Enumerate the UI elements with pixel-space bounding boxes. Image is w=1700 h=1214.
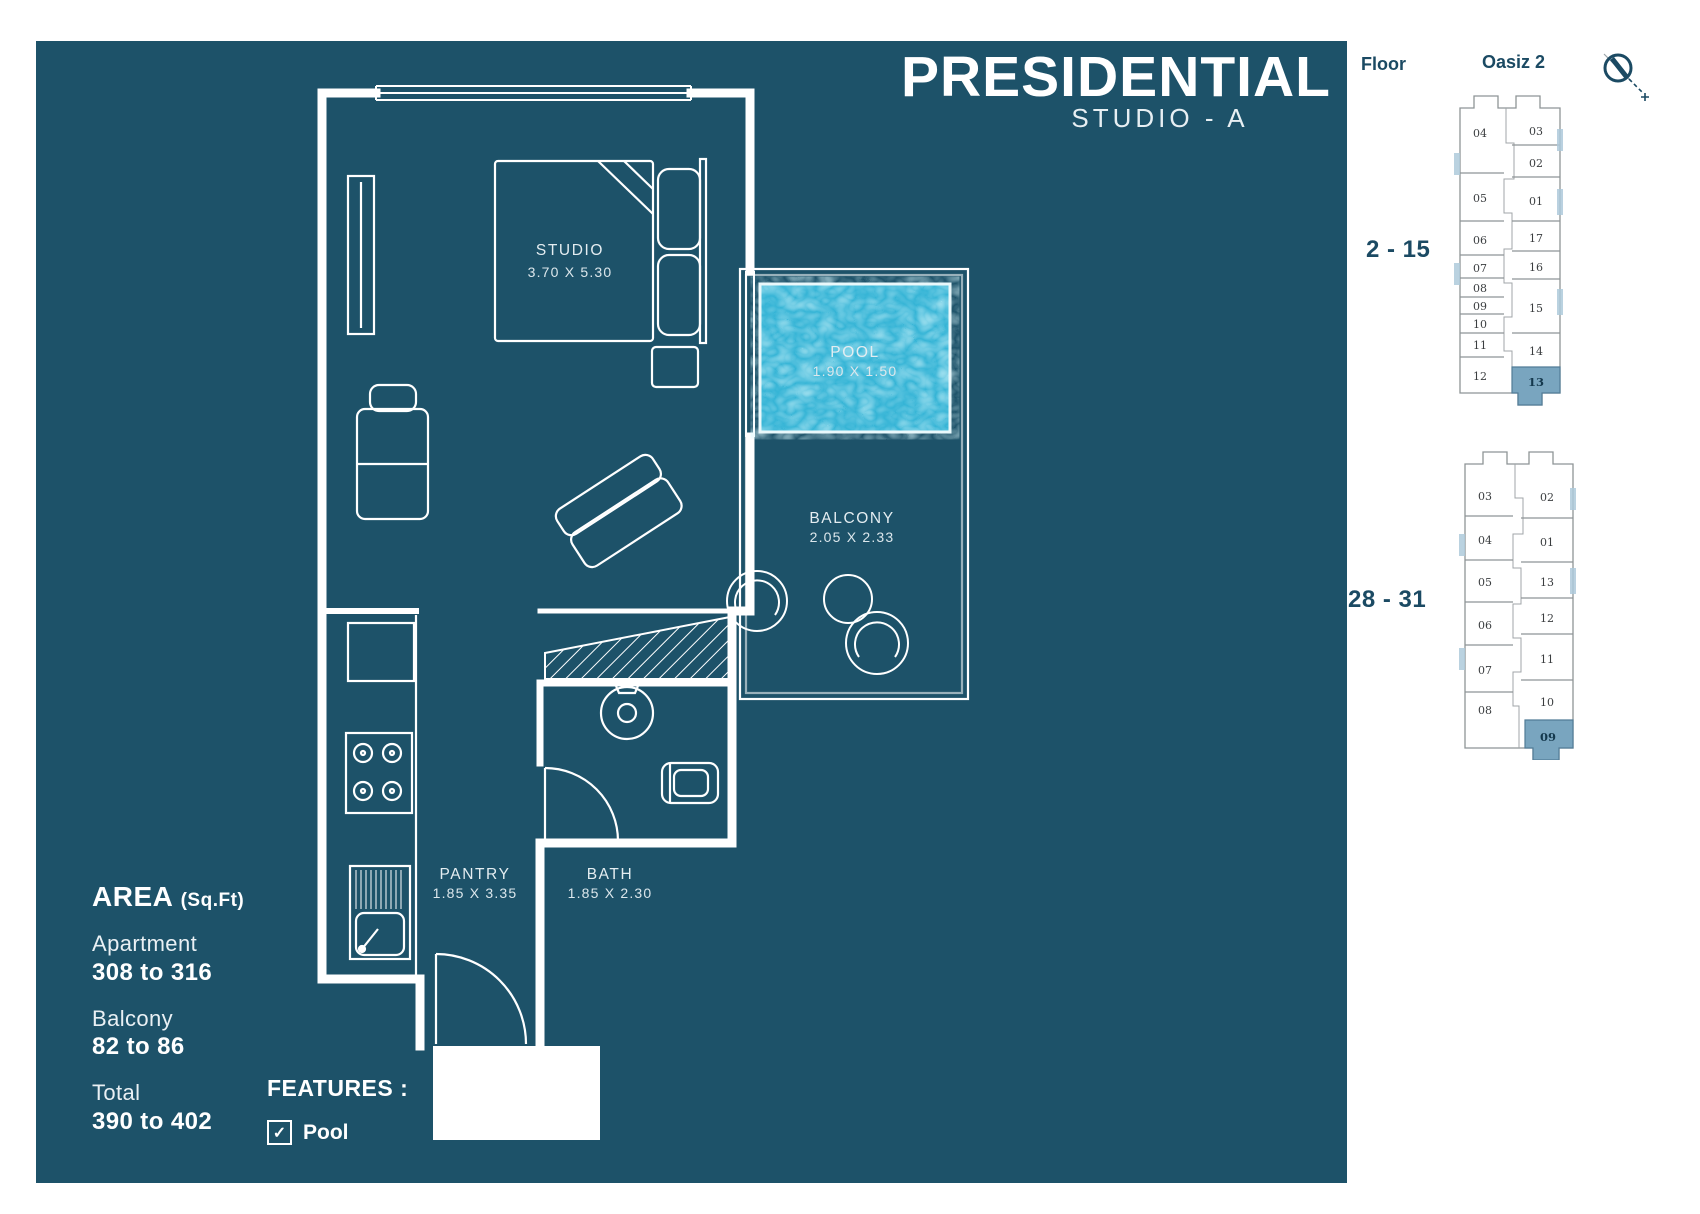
compass-north-icon: [1596, 46, 1660, 110]
floorplan-page: PRESIDENTIAL STUDIO - A: [0, 0, 1700, 1214]
area-summary: AREA (Sq.Ft) Apartment 308 to 316 Balcon…: [92, 881, 244, 1137]
svg-text:11: 11: [1540, 653, 1554, 666]
keyplan-window-accents: [1454, 129, 1563, 315]
balcony-glass-door: [746, 271, 754, 437]
svg-text:14: 14: [1529, 345, 1543, 358]
pool-dims: 1.90 X 1.50: [813, 363, 898, 379]
pantry-dims: 1.85 X 3.35: [433, 885, 518, 901]
checkbox-pool-icon: ✓: [267, 1120, 292, 1145]
svg-text:06: 06: [1473, 234, 1487, 247]
area-row-total: Total 390 to 402: [92, 1079, 244, 1137]
features-heading: FEATURES :: [267, 1075, 408, 1102]
entry-door: [436, 954, 526, 1044]
svg-text:16: 16: [1529, 261, 1543, 274]
pantry-label: PANTRY: [439, 866, 510, 883]
svg-text:02: 02: [1529, 157, 1543, 170]
bath-dims: 1.85 X 2.30: [568, 885, 653, 901]
keyplan-tower-2: 03 04 05 06 07 08 02 01 13 12 11 10 09: [1455, 448, 1582, 760]
keyplan-window-accents: [1459, 488, 1576, 670]
svg-text:07: 07: [1473, 262, 1487, 275]
svg-text:04: 04: [1478, 534, 1492, 547]
side-table: [652, 347, 698, 387]
counter: [348, 623, 414, 681]
hatched-zone: [545, 617, 730, 679]
floor-heading: Floor: [1361, 55, 1406, 73]
svg-text:06: 06: [1478, 619, 1492, 632]
area-unit-text: (Sq.Ft): [181, 890, 245, 911]
shower: [601, 687, 653, 739]
svg-text:05: 05: [1473, 192, 1487, 205]
svg-text:02: 02: [1540, 491, 1554, 504]
pillow: [658, 169, 700, 249]
keyplan-tower-1: 04 05 06 07 08 09 10 11 12 03 02 01 17 1…: [1452, 93, 1568, 407]
svg-text:08: 08: [1478, 704, 1492, 717]
studio-window: [376, 86, 691, 100]
headboard: [700, 159, 706, 343]
studio-dims: 3.70 X 5.30: [528, 264, 613, 280]
studio-label: STUDIO: [536, 242, 604, 259]
svg-text:07: 07: [1478, 664, 1492, 677]
area-row-apartment: Apartment 308 to 316: [92, 930, 244, 988]
svg-text:03: 03: [1529, 125, 1543, 138]
entry-threshold: [433, 1046, 600, 1140]
svg-text:01: 01: [1529, 195, 1543, 208]
features-block: FEATURES : ✓ Pool: [267, 1075, 408, 1145]
svg-text:09: 09: [1473, 300, 1487, 313]
svg-text:10: 10: [1473, 318, 1487, 331]
svg-text:13: 13: [1528, 375, 1544, 389]
svg-text:13: 13: [1540, 576, 1554, 589]
bath-label: BATH: [587, 866, 634, 883]
svg-text:17: 17: [1529, 232, 1543, 245]
area-row-balcony: Balcony 82 to 86: [92, 1005, 244, 1063]
svg-text:04: 04: [1473, 127, 1487, 140]
pillow: [658, 255, 700, 335]
balcony-table: [824, 575, 872, 623]
kitchen-fixtures: [346, 615, 416, 979]
balcony-dims: 2.05 X 2.33: [810, 529, 895, 545]
svg-text:01: 01: [1540, 536, 1554, 549]
sofa: [552, 451, 685, 570]
area-heading: AREA (Sq.Ft): [92, 881, 244, 913]
chair: [370, 385, 416, 411]
feature-pool: ✓ Pool: [267, 1120, 408, 1145]
floor-range-2: 28 - 31: [1348, 588, 1426, 612]
stove: [346, 733, 412, 813]
floorplan-panel: PRESIDENTIAL STUDIO - A: [36, 41, 1347, 1183]
studio-furniture: [348, 159, 706, 519]
pool-label: POOL: [830, 344, 879, 361]
svg-text:12: 12: [1473, 370, 1487, 383]
svg-text:12: 12: [1540, 612, 1554, 625]
bath-fixtures: [545, 681, 718, 841]
svg-text:08: 08: [1473, 282, 1487, 295]
pool-area: POOL 1.90 X 1.50: [760, 284, 950, 432]
project-name: Oasiz 2: [1482, 53, 1545, 71]
balcony-label: BALCONY: [809, 510, 894, 527]
svg-text:03: 03: [1478, 490, 1492, 503]
svg-text:09: 09: [1540, 730, 1556, 744]
svg-text:10: 10: [1540, 696, 1554, 709]
svg-text:05: 05: [1478, 576, 1492, 589]
svg-text:11: 11: [1473, 339, 1487, 352]
svg-text:15: 15: [1529, 302, 1543, 315]
floor-range-1: 2 - 15: [1366, 238, 1430, 262]
area-heading-text: AREA: [92, 881, 172, 912]
